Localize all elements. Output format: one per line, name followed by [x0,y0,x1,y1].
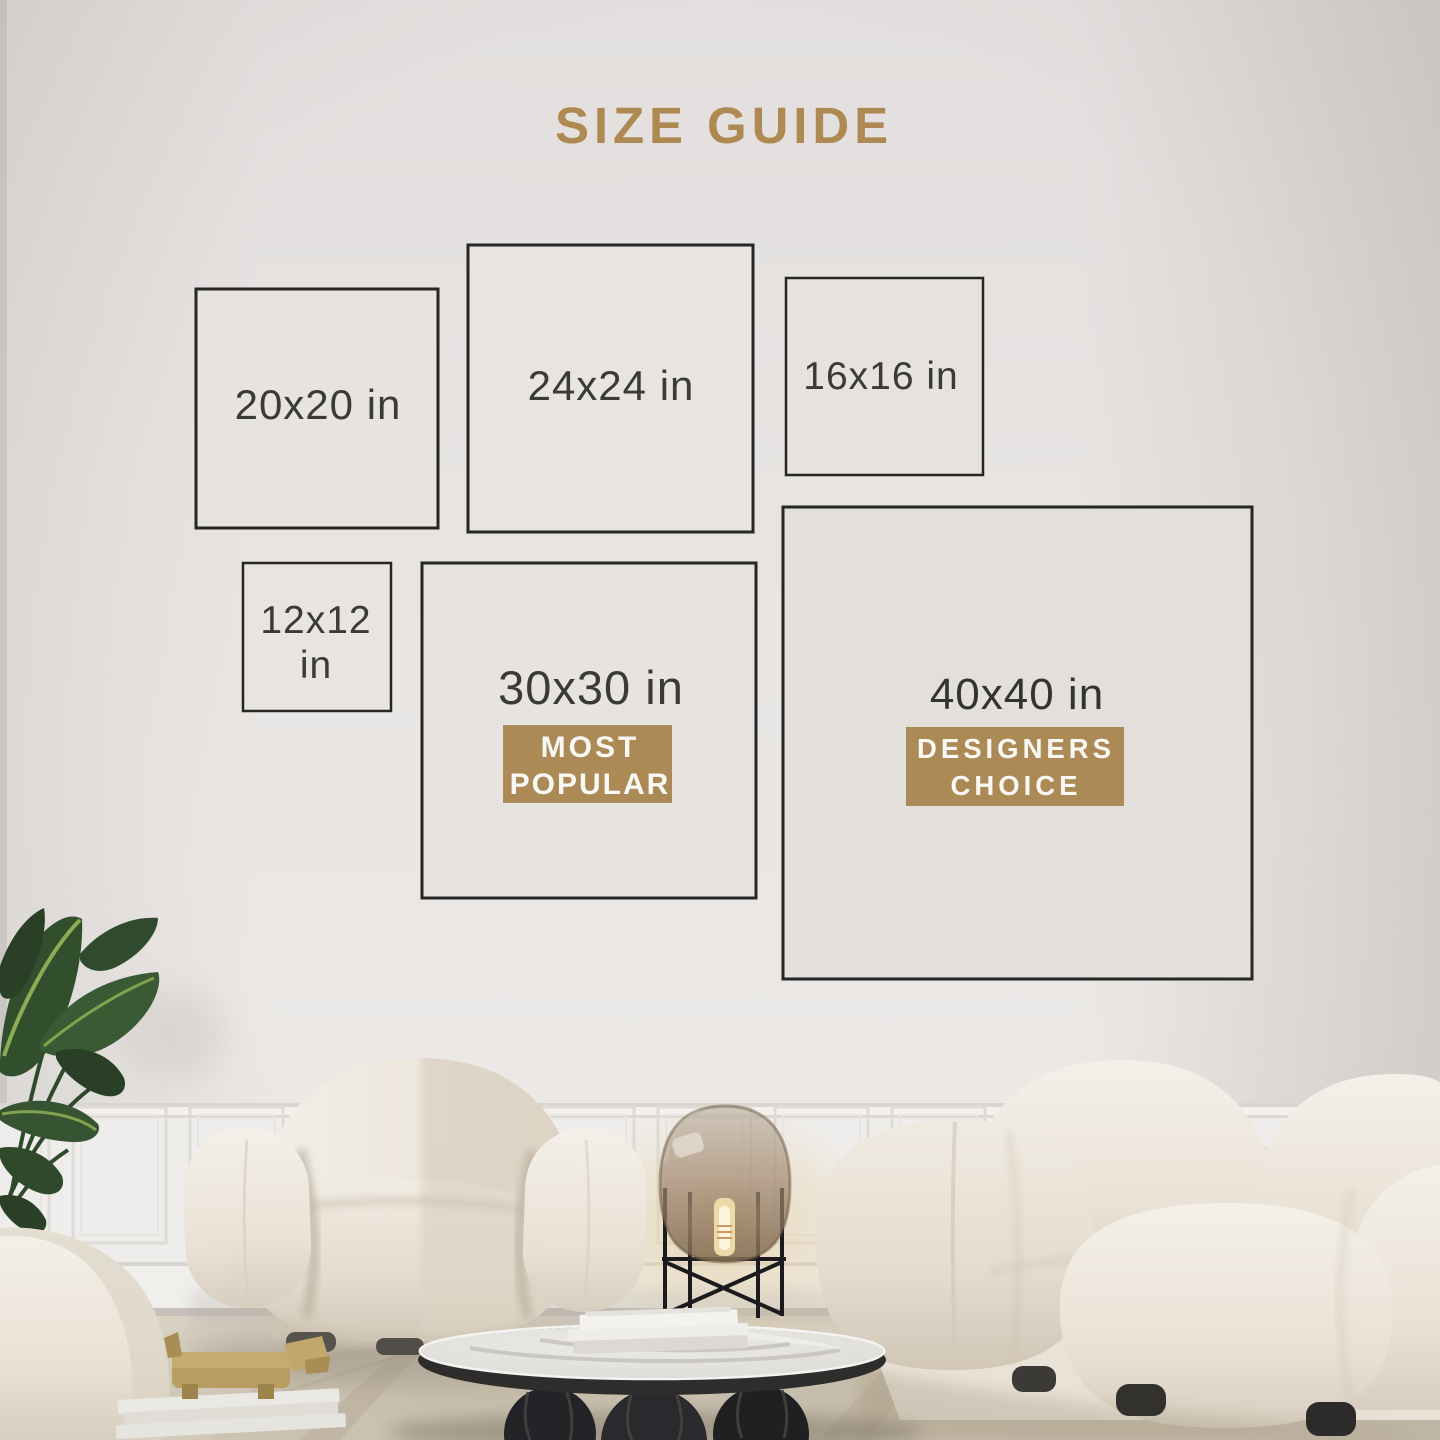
svg-text:16x16 in: 16x16 in [803,355,958,398]
svg-text:24x24 in: 24x24 in [528,362,695,409]
svg-text:in: in [300,644,332,687]
svg-text:DESIGNERS: DESIGNERS [917,733,1115,764]
svg-text:20x20 in: 20x20 in [235,381,402,428]
svg-text:40x40 in: 40x40 in [930,670,1104,719]
svg-text:POPULAR: POPULAR [510,768,671,801]
svg-text:CHOICE: CHOICE [951,770,1082,801]
svg-text:SIZE GUIDE: SIZE GUIDE [555,97,893,154]
svg-text:30x30 in: 30x30 in [498,661,684,714]
svg-text:12x12: 12x12 [260,599,371,642]
svg-text:MOST: MOST [541,731,640,764]
